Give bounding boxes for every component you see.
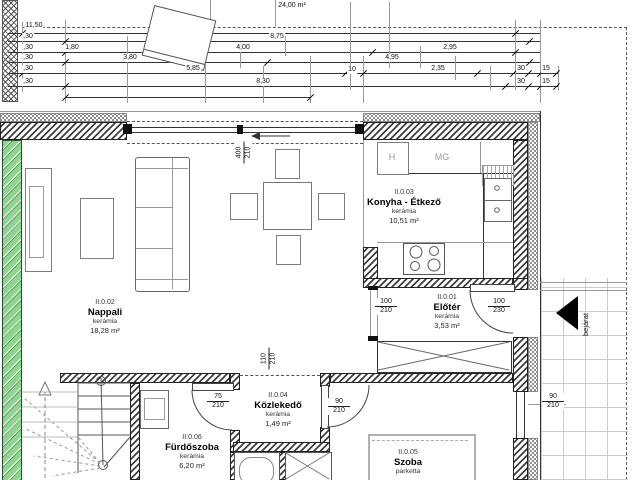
dim-label-875: 8,75 <box>269 33 285 41</box>
door-leaf-entry <box>470 284 515 292</box>
extension-line <box>490 66 491 90</box>
sofa-cushion-line <box>136 279 188 280</box>
tv-cabinet <box>29 186 44 258</box>
dim-label-30: ,30 <box>22 65 34 73</box>
washing-machine <box>144 398 165 420</box>
dim-label-830: 8,30 <box>255 78 271 86</box>
extension-line <box>363 56 364 103</box>
dim-label-495: 4,95 <box>384 54 400 62</box>
wall-segment <box>513 278 528 290</box>
sofa-back-line <box>172 158 173 289</box>
dim-label-30: ,30 <box>22 54 34 62</box>
sofa-cushion-line <box>136 168 188 169</box>
wall-segment <box>330 373 513 383</box>
sofa <box>135 157 190 292</box>
wall-outer-face <box>540 111 541 280</box>
dim-pass-living: 110210 <box>261 348 278 370</box>
extension-line <box>285 36 286 56</box>
dining-chair <box>275 149 300 179</box>
extension-line <box>350 2 351 90</box>
window-main <box>127 132 363 133</box>
dim-window-main: 400210 <box>236 142 253 164</box>
opening-frame <box>370 288 371 340</box>
dim-label-180: 1,80 <box>64 44 80 52</box>
dim-label-380: 3,80 <box>122 54 138 62</box>
dim-label-terrace-area: 24,00 m² <box>277 2 307 10</box>
room-label-kozlekedo: II.0.04 Közlekedő kerámia 1,49 m² <box>223 391 333 428</box>
dim-label-15r: 15 <box>541 65 551 73</box>
dim-label-235: 2,35 <box>430 65 446 73</box>
wardrobe <box>377 341 512 373</box>
wall-segment <box>513 337 528 392</box>
dim-label-30: ,30 <box>22 78 34 86</box>
dim-line <box>8 41 540 42</box>
window-post <box>237 125 243 134</box>
kitchen-counter <box>377 242 513 243</box>
dim-label-30: ,30 <box>22 44 34 52</box>
room-label-konyha: II.0.03 Konyha - Étkező kerámia 10,51 m² <box>349 188 459 225</box>
door-frame <box>524 392 525 438</box>
wall-segment <box>233 442 330 452</box>
property-line <box>22 27 627 28</box>
window-main <box>127 127 363 128</box>
dim-label-295: 2,95 <box>442 44 458 52</box>
room-label-szoba: II.0.05 Szoba parketta <box>353 448 463 476</box>
window-post <box>355 124 364 134</box>
insulation-strip <box>528 122 538 290</box>
dim-label-585: 5,85 <box>185 65 201 73</box>
overhang-line <box>127 121 363 122</box>
extension-line <box>420 46 421 68</box>
door-frame <box>516 392 517 438</box>
sofa-cushion-line <box>136 207 172 208</box>
dim-line <box>8 52 540 53</box>
extension-line <box>540 20 541 103</box>
dim-label-10: 10 <box>347 66 357 74</box>
bed-pillow-line <box>372 440 468 441</box>
roof-edge-line <box>0 111 540 112</box>
shower <box>285 452 332 480</box>
insulation-strip <box>528 337 538 392</box>
room-label-nappali: II.0.02 Nappali kerámia 18,28 m² <box>50 298 160 335</box>
dishwasher-label: MG <box>435 152 450 162</box>
dim-line <box>8 86 558 87</box>
dim-label-15r: 15 <box>541 78 551 86</box>
dining-chair <box>276 235 301 265</box>
dim-label-400: 4,00 <box>235 44 251 52</box>
insulation-strip <box>0 113 127 122</box>
window-slide-arrow-icon <box>251 132 290 140</box>
fridge-label: H <box>389 152 396 162</box>
wall-segment <box>513 140 528 280</box>
wall-segment <box>513 438 528 480</box>
wall-segment <box>60 373 230 383</box>
entrance-label: bejárat <box>581 313 590 336</box>
dim-label-30r: 30 <box>516 65 526 73</box>
dim-door-side: 90210 <box>542 393 564 410</box>
room-label-furdoszoba: II.0.06 Fürdőszoba kerámia 6,20 m² <box>137 433 247 470</box>
coffee-table <box>80 198 114 259</box>
extension-line <box>127 36 128 103</box>
floor-plan: 24,00 m² 11,50 ,30 ,30 ,30 ,30 ,30 8,75 … <box>0 0 640 480</box>
dim-label-total: 11,50 <box>25 22 44 30</box>
dim-label-30r: 30 <box>516 78 526 86</box>
dining-table <box>263 182 312 230</box>
walkway-step <box>540 290 627 291</box>
staircase <box>22 377 130 479</box>
wall-segment <box>0 122 127 140</box>
dining-chair <box>230 193 258 220</box>
dim-label-30: ,30 <box>22 33 34 41</box>
insulation-strip <box>363 113 540 122</box>
stove <box>403 243 445 275</box>
dim-line <box>65 97 310 98</box>
walkway-tiles <box>540 278 628 480</box>
sink <box>484 200 512 222</box>
insulation-strip <box>528 438 538 480</box>
door-leaf-bath <box>192 383 234 391</box>
walkway-step <box>540 282 627 283</box>
extension-line <box>455 56 456 80</box>
opening-post <box>368 286 378 290</box>
room-label-eloter: II.0.01 Előtér kerámia 3,53 m² <box>392 293 502 330</box>
wall-segment <box>363 122 528 140</box>
window-post <box>123 124 132 134</box>
counter-divider <box>480 142 481 173</box>
dim-line <box>8 62 540 63</box>
green-party-wall <box>2 140 22 480</box>
dining-chair <box>318 193 345 220</box>
stairs-up-arrow-icon <box>39 382 51 478</box>
sink <box>484 178 512 201</box>
extension-line <box>275 0 276 26</box>
sofa-cushion-line <box>136 248 172 249</box>
opening-dashed <box>240 375 320 376</box>
